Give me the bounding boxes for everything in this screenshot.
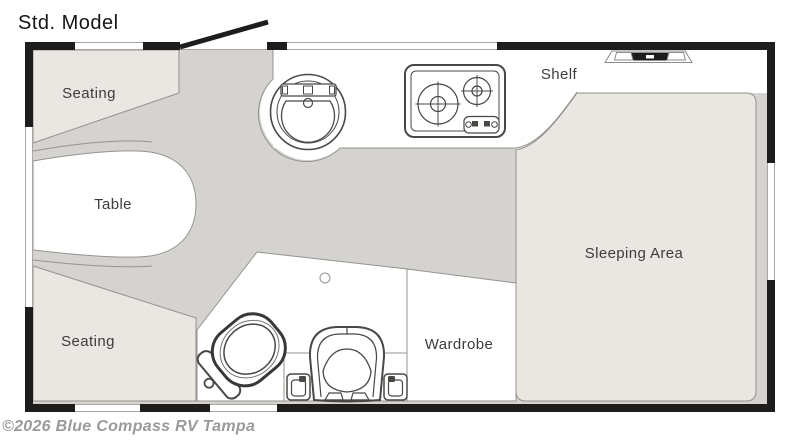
floorplan-page: Std. Model (0, 0, 800, 442)
label-seating-top: Seating (62, 85, 116, 102)
sink-counter-bulge (260, 64, 356, 160)
entry-door-icon (180, 22, 268, 47)
watermark: ©2026 Blue Compass RV Tampa (2, 418, 255, 435)
seat-icon (310, 327, 384, 402)
page-title: Std. Model (18, 12, 119, 34)
label-table: Table (94, 196, 132, 213)
label-sleeping-area: Sleeping Area (585, 245, 684, 262)
roof-vent-icon (605, 51, 692, 63)
floorplan-svg: Std. Model (0, 0, 800, 442)
label-seating-bottom: Seating (61, 333, 115, 350)
wardrobe-cabinet (407, 269, 516, 401)
step-box-right-icon (384, 374, 407, 400)
label-wardrobe: Wardrobe (425, 336, 494, 353)
stove-icon (405, 65, 505, 137)
label-shelf: Shelf (541, 66, 578, 83)
stove-control-panel (464, 117, 499, 134)
step-box-left-icon (287, 374, 310, 400)
